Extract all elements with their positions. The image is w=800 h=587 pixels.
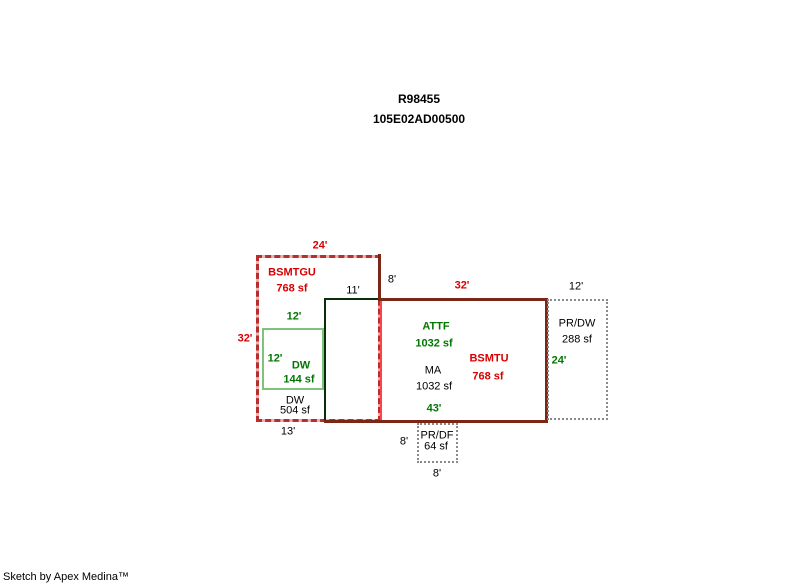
bsmtgu-dim-top: 24' bbox=[313, 241, 328, 252]
bsmtgu-dim-left: 32' bbox=[238, 334, 253, 345]
bsmtgu-area: 768 sf bbox=[276, 284, 307, 295]
record-id-title: R98455 bbox=[398, 92, 440, 106]
dw-lower-area: 504 sf bbox=[280, 406, 310, 417]
pr-df-dim-left: 8' bbox=[400, 437, 408, 448]
dw-garage-area: 144 sf bbox=[283, 375, 314, 386]
bsmtgu-label: BSMTGU bbox=[268, 268, 316, 279]
pr-df-area: 64 sf bbox=[424, 442, 448, 453]
pr-dw-dim-top: 12' bbox=[569, 282, 583, 293]
dw-garage-label: DW bbox=[292, 361, 310, 372]
bsmtu-dim-top: 32' bbox=[455, 281, 470, 292]
parcel-number-title: 105E02AD00500 bbox=[373, 112, 465, 126]
dw-lower-dim-bottom: 13' bbox=[281, 427, 295, 438]
property-sketch-canvas: R98455 105E02AD00500 24' BSMTGU 768 sf 3… bbox=[0, 0, 800, 587]
jog-dim-vertical: 8' bbox=[388, 275, 396, 286]
ma-dim-bottom: 43' bbox=[427, 404, 442, 415]
bsmtu-left-edge bbox=[380, 301, 382, 420]
bsmtu-jog-edge bbox=[378, 254, 381, 301]
attf-area: 1032 sf bbox=[415, 339, 452, 350]
pr-dw-area: 288 sf bbox=[562, 335, 592, 346]
jog-dim-horizontal: 11' bbox=[346, 286, 360, 297]
bsmtu-top-edge bbox=[378, 298, 548, 301]
ma-label: MA bbox=[425, 366, 442, 377]
pr-dw-label: PR/DW bbox=[559, 319, 596, 330]
bsmtu-label: BSMTU bbox=[469, 354, 508, 365]
ma-area: 1032 sf bbox=[416, 382, 452, 393]
dw-garage-dim-left: 12' bbox=[268, 354, 283, 365]
pr-df-dim-bottom: 8' bbox=[433, 469, 441, 480]
sketch-attribution: Sketch by Apex Medina™ bbox=[3, 571, 129, 583]
dw-garage-dim-top: 12' bbox=[287, 312, 302, 323]
bsmtu-dim-right: 24' bbox=[552, 356, 567, 367]
attf-label: ATTF bbox=[422, 322, 449, 333]
bsmtu-area: 768 sf bbox=[472, 372, 503, 383]
